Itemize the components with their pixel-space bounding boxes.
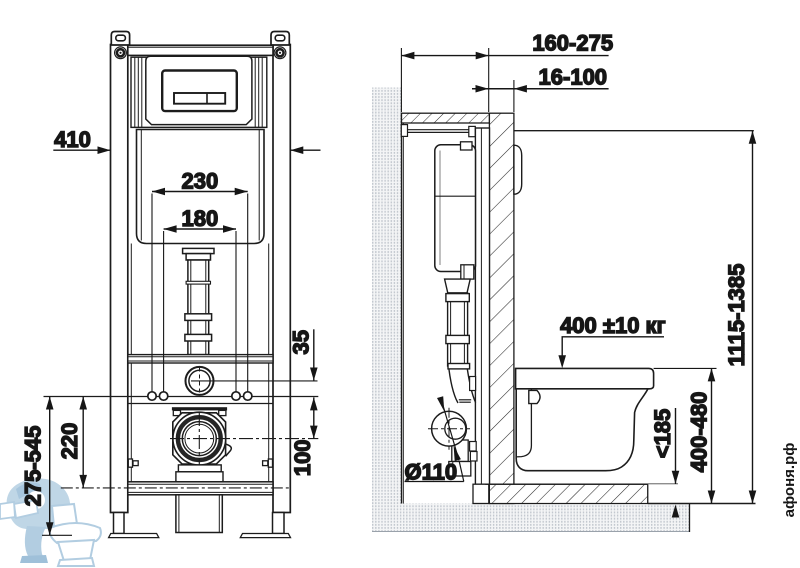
svg-text:220: 220 xyxy=(57,423,82,460)
svg-text:16-100: 16-100 xyxy=(539,65,608,90)
svg-text:афоня.рф: афоня.рф xyxy=(781,443,798,518)
svg-text:100: 100 xyxy=(290,439,315,476)
svg-text:180: 180 xyxy=(182,206,219,231)
svg-text:410: 410 xyxy=(54,127,91,152)
svg-text:35: 35 xyxy=(289,330,314,354)
svg-text:<185: <185 xyxy=(650,409,675,459)
svg-text:275-545: 275-545 xyxy=(21,426,46,507)
svg-text:160-275: 160-275 xyxy=(532,30,613,55)
svg-text:400-480: 400-480 xyxy=(687,392,712,473)
svg-text:1115-1385: 1115-1385 xyxy=(724,264,749,367)
svg-text:400 ±10 кг: 400 ±10 кг xyxy=(560,313,666,338)
svg-text:Ø110: Ø110 xyxy=(405,460,458,485)
svg-text:230: 230 xyxy=(182,168,219,193)
